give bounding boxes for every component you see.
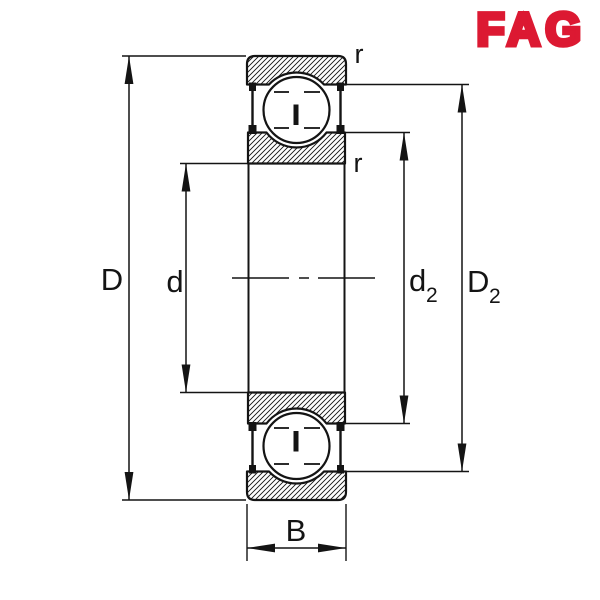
arrow-B-right	[318, 544, 346, 553]
label-d: d	[166, 264, 183, 299]
label-d2-subscript: 2	[426, 284, 438, 307]
label-r-top: r	[355, 39, 364, 69]
bearing-diagram: FAG FAG	[0, 0, 600, 600]
arrow-d2-bottom	[400, 396, 409, 424]
label-D: D	[101, 262, 123, 297]
arrow-d-bottom	[182, 365, 191, 393]
arrow-d-top	[182, 164, 191, 192]
ball-center-mark-bottom	[294, 431, 299, 452]
arrow-D2-bottom	[458, 444, 467, 472]
drawing-page: FAG FAG	[0, 0, 600, 600]
label-D2-subscript: 2	[489, 285, 501, 308]
label-r-bottom: r	[354, 148, 363, 178]
arrow-B-left	[247, 544, 275, 553]
bearing-bottom-section	[247, 393, 346, 501]
label-B: B	[286, 513, 307, 548]
label-D2-base: D	[467, 264, 489, 299]
dimension-D-group	[122, 56, 246, 500]
brand-logo-outline: FAG	[476, 3, 586, 55]
bearing-top-section	[247, 56, 346, 164]
arrow-D-bottom	[125, 472, 134, 500]
ball-center-mark-top	[294, 105, 299, 126]
arrow-D-top	[125, 56, 134, 84]
label-d2-base: d	[409, 263, 426, 298]
arrow-D2-top	[458, 85, 467, 113]
arrow-d2-top	[400, 133, 409, 161]
